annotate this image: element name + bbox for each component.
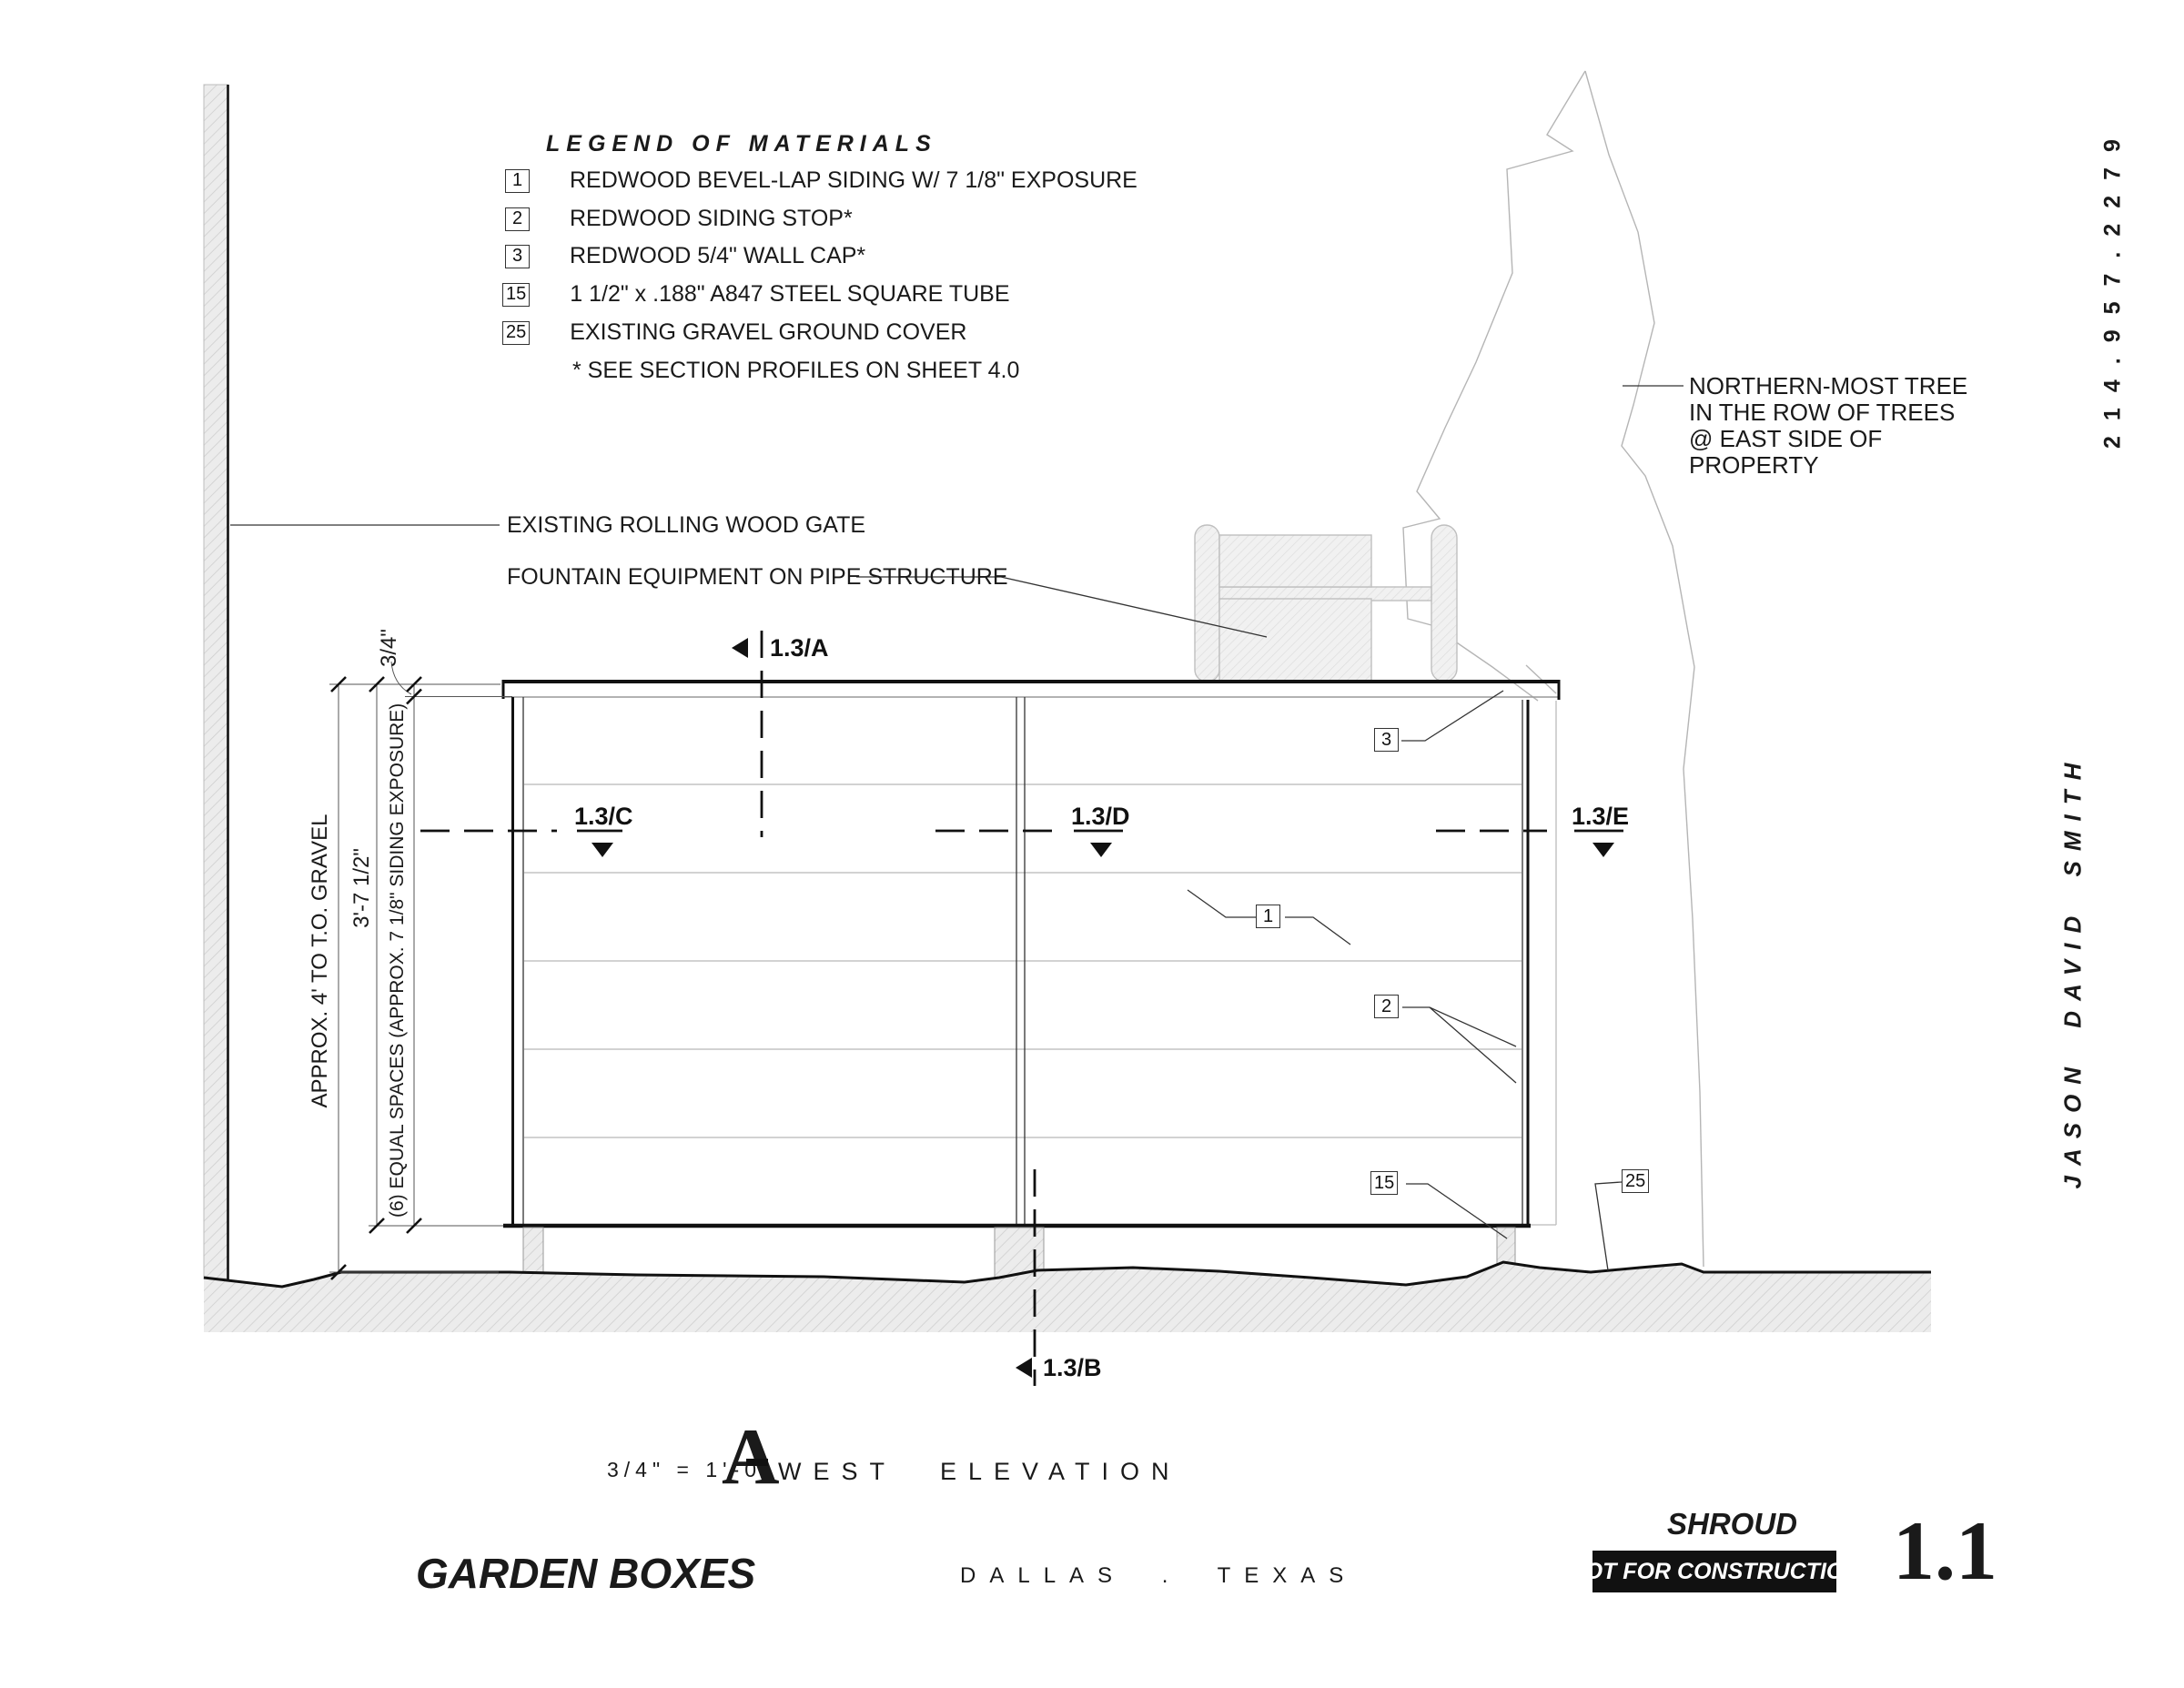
callout-3: 3: [1374, 728, 1399, 752]
fountain-equipment: [1195, 525, 1457, 682]
tree-note-line: PROPERTY: [1689, 452, 1967, 479]
drawing-sheet: LEGEND OF MATERIALS 1 REDWOOD BEVEL-LAP …: [0, 0, 2184, 1688]
legend-label-15: 1 1/2" x .188" A847 STEEL SQUARE TUBE: [570, 281, 1009, 308]
fountain-label: FOUNTAIN EQUIPMENT ON PIPE STRUCTURE: [507, 564, 1008, 591]
gravel-ground: [204, 1262, 1931, 1332]
dim-overall: APPROX. 4' TO T.O. GRAVEL: [308, 797, 333, 1125]
section-marker-arrows: [591, 638, 1614, 1378]
tree-note-line: NORTHERN-MOST TREE: [1689, 373, 1967, 399]
tree-note: NORTHERN-MOST TREE IN THE ROW OF TREES @…: [1689, 373, 1967, 479]
dim-height: 3'-7 1/2": [349, 829, 375, 947]
legend-label-2: REDWOOD SIDING STOP*: [570, 206, 853, 232]
rear-return-lines: [1531, 701, 1556, 1225]
legend-item: 15 1 1/2" x .188" A847 STEEL SQUARE TUBE: [502, 281, 1010, 308]
legend-key-2: 2: [505, 207, 530, 231]
legend-label-25: EXISTING GRAVEL GROUND COVER: [570, 319, 966, 346]
firm-name: SHROUD: [1667, 1507, 1797, 1541]
callout-15: 15: [1370, 1171, 1398, 1195]
legend-key-3: 3: [505, 245, 530, 268]
dimension-lines: [329, 662, 512, 1272]
dim-cap: 3/4": [377, 621, 402, 675]
elevation-marker-letter: A: [722, 1418, 780, 1498]
section-marker-d: 1.3/D: [1071, 803, 1130, 831]
legend-key-15: 15: [502, 283, 530, 307]
sheet-number: 1.1: [1893, 1509, 1997, 1592]
legend-label-1: REDWOOD BEVEL-LAP SIDING W/ 7 1/8" EXPOS…: [570, 167, 1137, 194]
tree-note-line: IN THE ROW OF TREES: [1689, 399, 1967, 426]
legend-item: 2 REDWOOD SIDING STOP*: [505, 206, 853, 232]
legend-item: 1 REDWOOD BEVEL-LAP SIDING W/ 7 1/8" EXP…: [505, 167, 1137, 194]
legend-title: LEGEND OF MATERIALS: [546, 131, 937, 157]
section-marker-a: 1.3/A: [770, 634, 829, 662]
garden-box-body: [503, 680, 1559, 1226]
legend-key-25: 25: [502, 321, 530, 345]
architect-name: JASON DAVID SMITH: [2059, 760, 2088, 1189]
phone-number: 214.957.2279: [2100, 105, 2127, 469]
legend-item: 3 REDWOOD 5/4" WALL CAP*: [505, 243, 865, 269]
left-wall-hatch: [204, 85, 228, 1279]
project-title: GARDEN BOXES: [416, 1549, 755, 1598]
section-marker-b: 1.3/B: [1043, 1354, 1102, 1382]
project-location: DALLAS . TEXAS: [960, 1563, 1357, 1589]
status-text: NOT FOR CONSTRUCTION: [1569, 1559, 1861, 1585]
legend-item: 25 EXISTING GRAVEL GROUND COVER: [502, 319, 966, 346]
legend-label-3: REDWOOD 5/4" WALL CAP*: [570, 243, 865, 269]
legend-key-1: 1: [505, 169, 530, 193]
legend-note: * SEE SECTION PROFILES ON SHEET 4.0: [572, 358, 1019, 384]
dim-spaces: (6) EQUAL SPACES (APPROX. 7 1/8" SIDING …: [387, 708, 409, 1218]
view-title: WEST ELEVATION: [778, 1458, 1181, 1486]
section-marker-e: 1.3/E: [1572, 803, 1629, 831]
gate-label: EXISTING ROLLING WOOD GATE: [507, 512, 865, 539]
elevation-marker-dash: [746, 1459, 768, 1466]
tree-note-line: @ EAST SIDE OF: [1689, 426, 1967, 452]
section-marker-c: 1.3/C: [574, 803, 633, 831]
callout-1: 1: [1256, 905, 1280, 928]
callout-2: 2: [1374, 995, 1399, 1018]
status-stamp: NOT FOR CONSTRUCTION: [1592, 1551, 1836, 1592]
callout-25: 25: [1622, 1169, 1649, 1193]
